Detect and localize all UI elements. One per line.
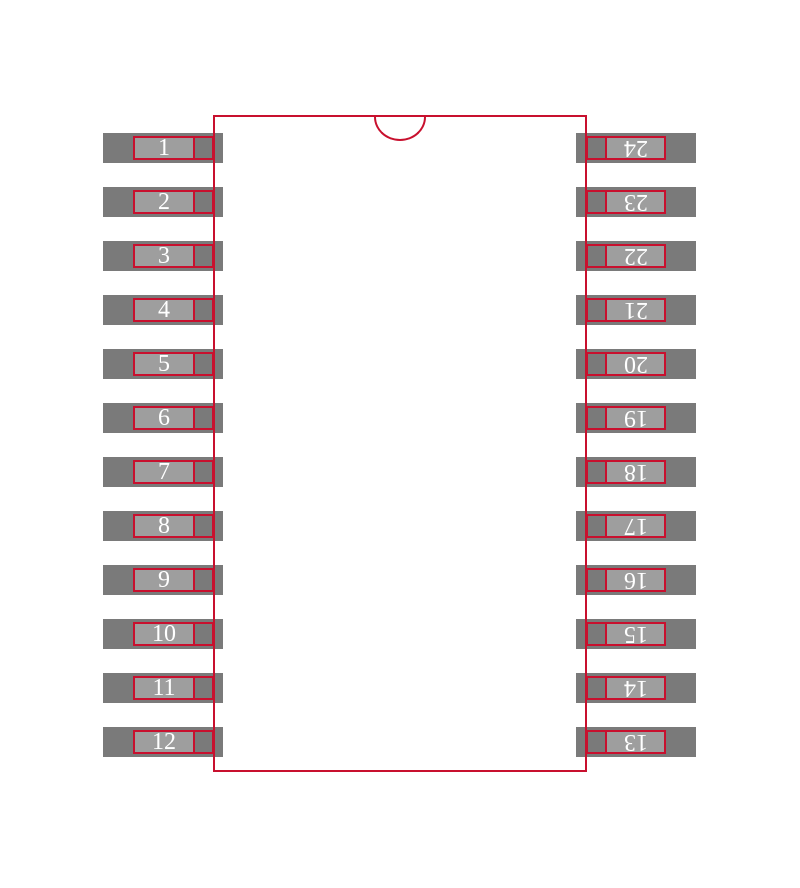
pin-lead-foot: 15 xyxy=(607,624,664,644)
pin-lead-outline: 7 xyxy=(133,460,214,484)
pin-lead-heel xyxy=(588,354,607,374)
pin-lead-heel xyxy=(193,624,212,644)
pin-lead-heel xyxy=(193,732,212,752)
pin-lead-foot: 7 xyxy=(135,462,193,482)
pin-number: 10 xyxy=(152,622,176,646)
pin-lead-foot: 8 xyxy=(135,516,193,536)
pin-pad-22: 22 xyxy=(576,241,696,271)
pin-number: 14 xyxy=(624,676,648,700)
pin-pad-20: 20 xyxy=(576,349,696,379)
pin-pad-13: 13 xyxy=(576,727,696,757)
pin-number: 15 xyxy=(624,622,648,646)
package-body-outline xyxy=(213,115,587,772)
pin-pad-24: 24 xyxy=(576,133,696,163)
pin-lead-foot: 18 xyxy=(607,462,664,482)
pin-lead-foot: 5 xyxy=(135,354,193,374)
pin-pad-8: 8 xyxy=(103,511,223,541)
pin-lead-foot: 17 xyxy=(607,516,664,536)
pin-pad-3: 3 xyxy=(103,241,223,271)
pin-pad-7: 7 xyxy=(103,457,223,487)
pin-pad-17: 17 xyxy=(576,511,696,541)
pin-number: 24 xyxy=(624,136,648,160)
pin-lead-heel xyxy=(193,678,212,698)
pin-lead-foot: 20 xyxy=(607,354,664,374)
pin-pad-5: 5 xyxy=(103,349,223,379)
pin-lead-foot: 19 xyxy=(607,408,664,428)
pin-lead-heel xyxy=(193,516,212,536)
pin-lead-foot: 16 xyxy=(607,570,664,590)
pin-lead-foot: 4 xyxy=(135,300,193,320)
pin-lead-outline: 11 xyxy=(133,676,214,700)
pin-number: 2 xyxy=(158,190,170,214)
pin-lead-foot: 12 xyxy=(135,732,193,752)
pin-number: 16 xyxy=(624,568,648,592)
pin-lead-heel xyxy=(588,678,607,698)
pin-number: 7 xyxy=(158,460,170,484)
pin-lead-heel xyxy=(588,192,607,212)
pin-lead-foot: 10 xyxy=(135,624,193,644)
pin1-indicator-notch xyxy=(374,117,426,141)
pin-lead-outline: 14 xyxy=(586,676,666,700)
pin-pad-14: 14 xyxy=(576,673,696,703)
pin-lead-heel xyxy=(588,408,607,428)
pin-pad-9: 9 xyxy=(103,565,223,595)
pin-lead-outline: 4 xyxy=(133,298,214,322)
pin-lead-outline: 12 xyxy=(133,730,214,754)
pin-pad-6: 6 xyxy=(103,403,223,433)
pin-lead-heel xyxy=(193,408,212,428)
pin-lead-heel xyxy=(588,138,607,158)
pin-number: 8 xyxy=(158,514,170,538)
pin-lead-outline: 9 xyxy=(133,568,214,592)
pin-lead-outline: 18 xyxy=(586,460,666,484)
pin-lead-heel xyxy=(588,516,607,536)
pin-pad-16: 16 xyxy=(576,565,696,595)
pin-lead-outline: 20 xyxy=(586,352,666,376)
pin-lead-heel xyxy=(193,570,212,590)
pin-number: 3 xyxy=(158,244,170,268)
pin-pad-2: 2 xyxy=(103,187,223,217)
pin-lead-outline: 16 xyxy=(586,568,666,592)
pin-lead-outline: 10 xyxy=(133,622,214,646)
pin-pad-21: 21 xyxy=(576,295,696,325)
pin-lead-foot: 11 xyxy=(135,678,193,698)
pin-lead-outline: 15 xyxy=(586,622,666,646)
pin-lead-heel xyxy=(193,246,212,266)
pin-number: 11 xyxy=(152,676,175,700)
pin-lead-foot: 14 xyxy=(607,678,664,698)
pin-pad-12: 12 xyxy=(103,727,223,757)
pin-lead-heel xyxy=(588,570,607,590)
pin-lead-outline: 1 xyxy=(133,136,214,160)
pin-number: 20 xyxy=(624,352,648,376)
pin-pad-23: 23 xyxy=(576,187,696,217)
pin-lead-foot: 21 xyxy=(607,300,664,320)
pin-lead-foot: 24 xyxy=(607,138,664,158)
pin-lead-heel xyxy=(588,732,607,752)
pin-pad-1: 1 xyxy=(103,133,223,163)
pin-lead-heel xyxy=(193,354,212,374)
pin-lead-outline: 21 xyxy=(586,298,666,322)
pin-lead-heel xyxy=(588,246,607,266)
pin-lead-foot: 1 xyxy=(135,138,193,158)
pin-number: 12 xyxy=(152,730,176,754)
pin-lead-heel xyxy=(588,462,607,482)
pin-lead-heel xyxy=(193,300,212,320)
pin-number: 5 xyxy=(158,352,170,376)
pin-number: 23 xyxy=(624,190,648,214)
pin-lead-outline: 2 xyxy=(133,190,214,214)
pin-lead-foot: 13 xyxy=(607,732,664,752)
pin-lead-outline: 5 xyxy=(133,352,214,376)
pin-lead-heel xyxy=(193,462,212,482)
pin-lead-outline: 3 xyxy=(133,244,214,268)
pin-lead-heel xyxy=(193,138,212,158)
pin-number: 17 xyxy=(624,514,648,538)
pin-number: 13 xyxy=(624,730,648,754)
pin-number: 9 xyxy=(158,568,170,592)
pin-lead-outline: 17 xyxy=(586,514,666,538)
pin-number: 19 xyxy=(624,406,648,430)
pin-number: 1 xyxy=(158,136,170,160)
pin-lead-outline: 13 xyxy=(586,730,666,754)
pin-lead-outline: 19 xyxy=(586,406,666,430)
pin-number: 4 xyxy=(158,298,170,322)
pin-lead-foot: 22 xyxy=(607,246,664,266)
pin-pad-10: 10 xyxy=(103,619,223,649)
pin-lead-foot: 6 xyxy=(135,408,193,428)
pin-lead-foot: 23 xyxy=(607,192,664,212)
pin-pad-19: 19 xyxy=(576,403,696,433)
pin-number: 18 xyxy=(624,460,648,484)
footprint-canvas: 123456789101112 242322212019181716151413 xyxy=(0,0,800,888)
pin-lead-outline: 23 xyxy=(586,190,666,214)
pin-number: 6 xyxy=(158,406,170,430)
pin-pad-4: 4 xyxy=(103,295,223,325)
pin-lead-foot: 9 xyxy=(135,570,193,590)
pin-lead-outline: 6 xyxy=(133,406,214,430)
pin-pad-11: 11 xyxy=(103,673,223,703)
pin-number: 22 xyxy=(624,244,648,268)
pin-pad-15: 15 xyxy=(576,619,696,649)
pin-lead-outline: 22 xyxy=(586,244,666,268)
pin-lead-outline: 8 xyxy=(133,514,214,538)
pin-lead-heel xyxy=(588,624,607,644)
pin-lead-foot: 3 xyxy=(135,246,193,266)
pin-pad-18: 18 xyxy=(576,457,696,487)
pin-lead-heel xyxy=(588,300,607,320)
pin-number: 21 xyxy=(624,298,648,322)
pin-lead-outline: 24 xyxy=(586,136,666,160)
pin-lead-foot: 2 xyxy=(135,192,193,212)
pin-lead-heel xyxy=(193,192,212,212)
